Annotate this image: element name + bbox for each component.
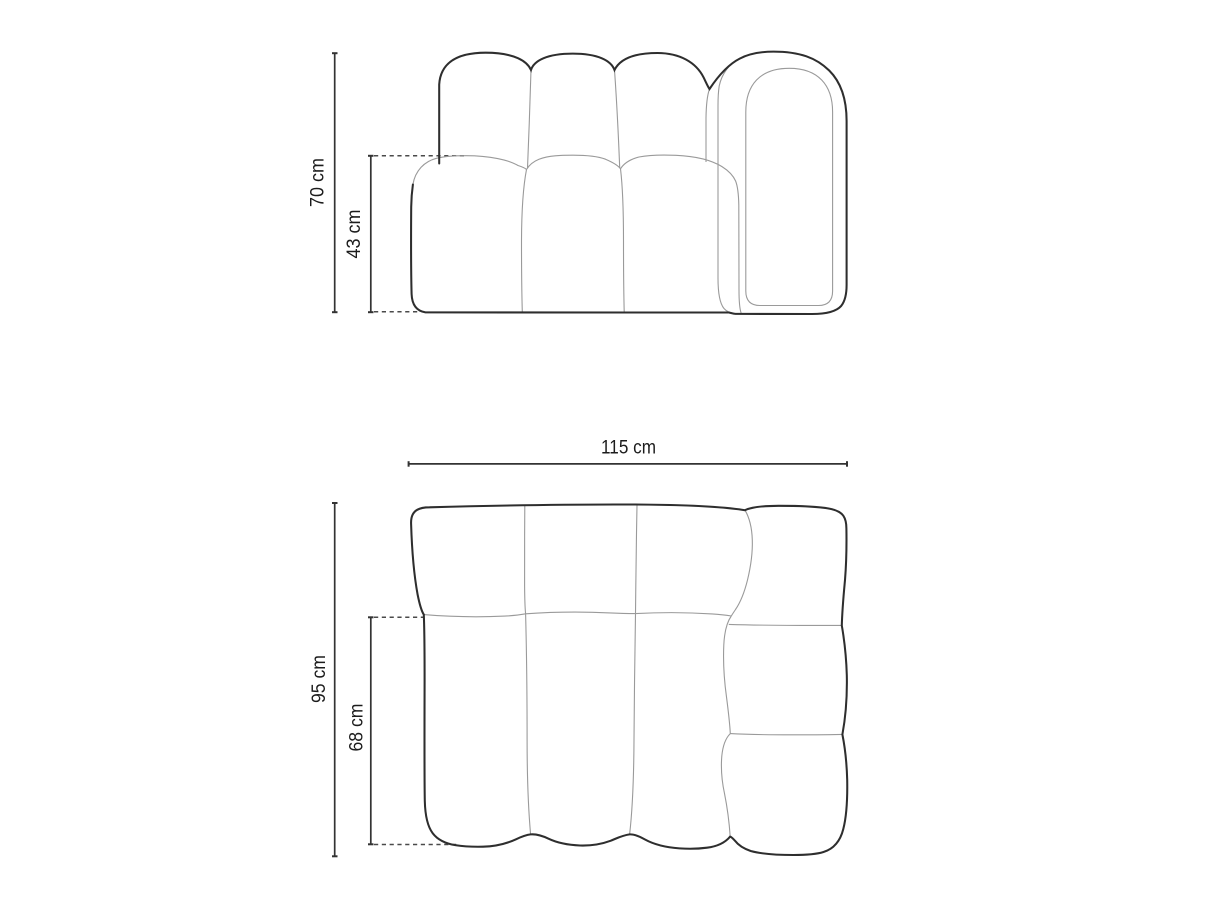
svg-text:115 cm: 115 cm: [601, 436, 656, 458]
svg-text:43 cm: 43 cm: [343, 210, 365, 259]
svg-text:70 cm: 70 cm: [307, 158, 329, 207]
svg-text:95 cm: 95 cm: [308, 655, 330, 703]
svg-text:68 cm: 68 cm: [346, 704, 368, 752]
